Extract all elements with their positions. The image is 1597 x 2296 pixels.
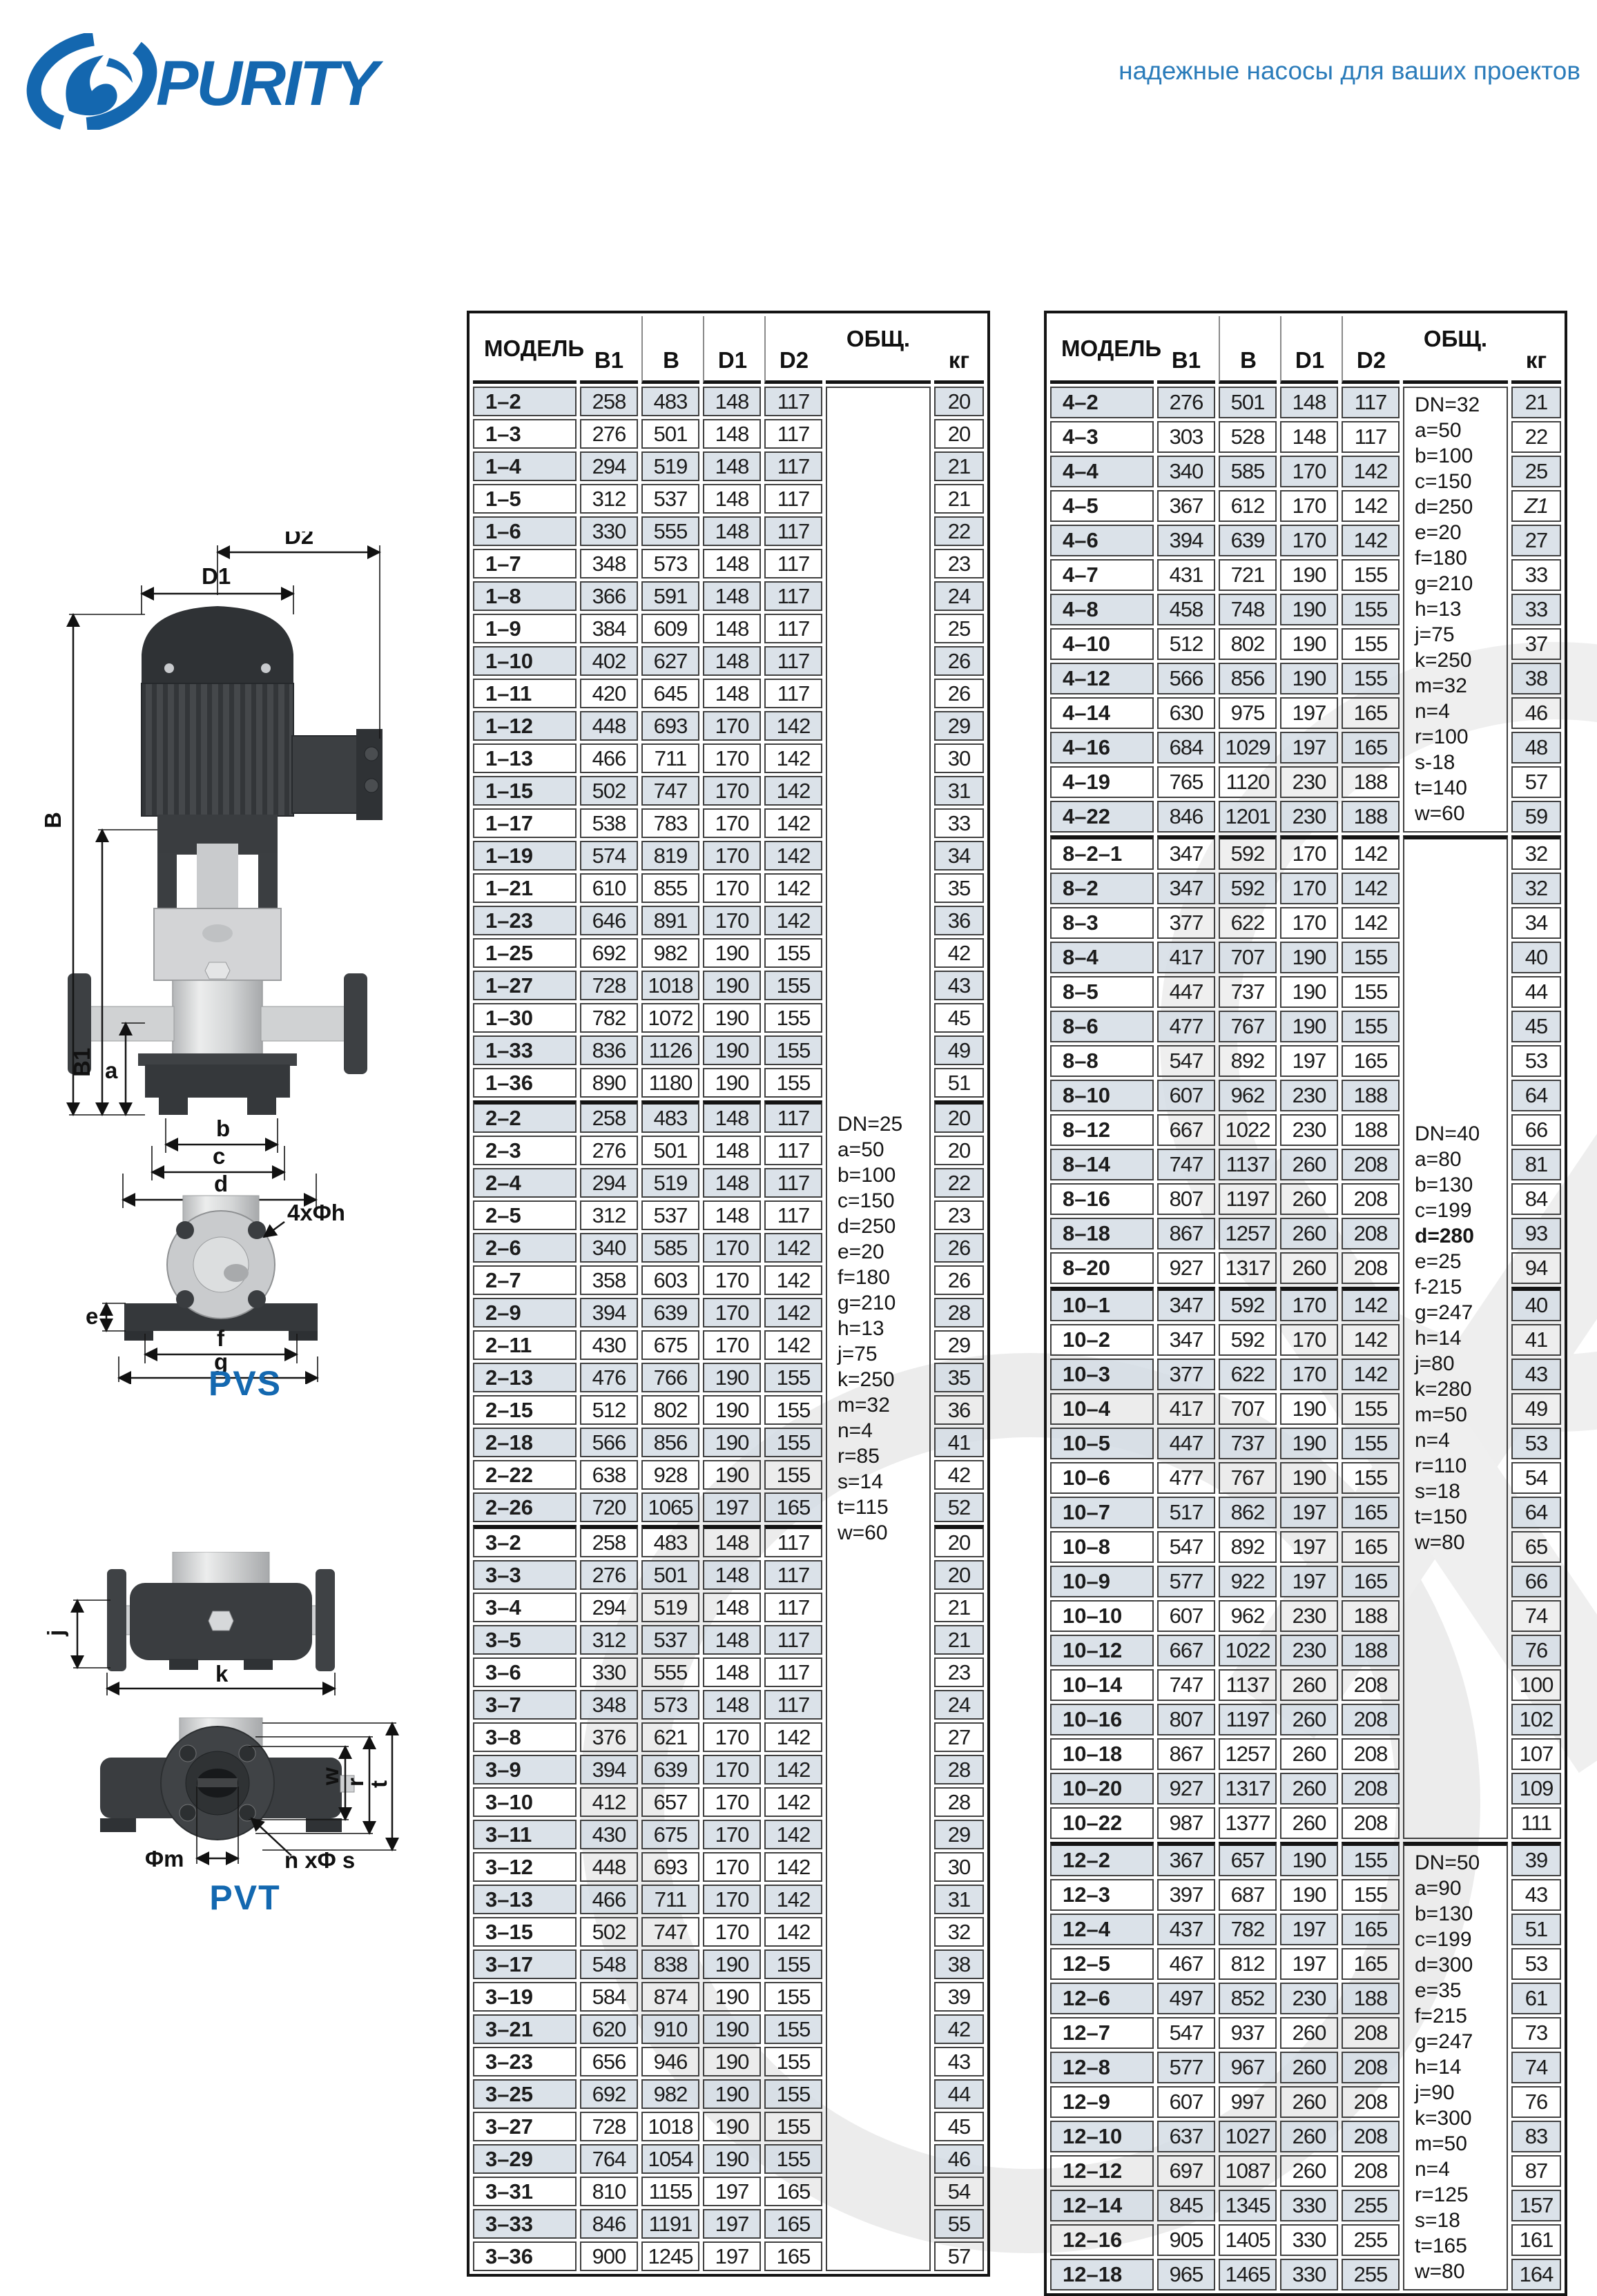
kg-cell: 21 [934, 484, 984, 514]
dim-cell: 142 [764, 1330, 822, 1360]
dim-cell: 330 [1280, 2259, 1338, 2290]
dim-cell: 547 [1157, 1531, 1215, 1563]
dim-cell: 117 [764, 1525, 822, 1557]
kg-cell: 21 [934, 1625, 984, 1655]
dim-cell: 170 [703, 1820, 761, 1849]
dim-cell: 466 [580, 1885, 638, 1914]
dim-cell: 170 [1280, 835, 1338, 870]
dim-cell: 190 [1280, 942, 1338, 973]
note-line: c=199 [1415, 1198, 1506, 1223]
note-line: h=14 [1415, 2055, 1506, 2080]
dim-cell: 117 [764, 1168, 822, 1198]
note-line: j=90 [1415, 2081, 1506, 2105]
model-cell: 4–6 [1050, 525, 1154, 556]
kg-cell: 20 [934, 419, 984, 449]
kg-cell: 44 [1511, 976, 1561, 1008]
kg-cell: 66 [1511, 1114, 1561, 1146]
common-dims-cell: DN=32a=50b=100c=150d=250e=20f=180g=210h=… [1403, 387, 1508, 833]
model-cell: 3–12 [473, 1852, 577, 1882]
dim-cell: 142 [764, 1852, 822, 1882]
dim-cell: 502 [580, 776, 638, 806]
dim-cell: 208 [1342, 2017, 1400, 2049]
dim-cell: 512 [1157, 628, 1215, 660]
dim-label-m: Φm [145, 1846, 184, 1871]
kg-cell: 32 [934, 1917, 984, 1947]
common-dims-block: DN=32a=50b=100c=150d=250e=20f=180g=210h=… [1405, 393, 1506, 826]
dim-cell: 258 [580, 1525, 638, 1557]
note-line: r=125 [1415, 2183, 1506, 2208]
kg-cell: 25 [1511, 456, 1561, 487]
note-line: f=180 [1415, 546, 1506, 571]
dim-cell: 142 [764, 1820, 822, 1849]
kg-cell: 31 [934, 1885, 984, 1914]
model-cell: 4–19 [1050, 766, 1154, 798]
dim-cell: 846 [580, 2209, 638, 2239]
model-cell: 8–8 [1050, 1045, 1154, 1077]
dim-cell: 584 [580, 1982, 638, 2012]
model-cell: 3–8 [473, 1722, 577, 1752]
note-line: s=14 [838, 1470, 929, 1495]
model-cell: 1–6 [473, 516, 577, 546]
dim-cell: 260 [1280, 1738, 1338, 1770]
dim-cell: 155 [1342, 1462, 1400, 1494]
kg-cell: 28 [934, 1755, 984, 1784]
dim-cell: 170 [703, 1233, 761, 1263]
dim-cell: 155 [764, 2079, 822, 2109]
dim-cell: 117 [764, 387, 822, 416]
dim-cell: 466 [580, 743, 638, 773]
dim-cell: 477 [1157, 1462, 1215, 1494]
dim-cell: 620 [580, 2014, 638, 2044]
dim-cell: 190 [1280, 628, 1338, 660]
dim-cell: 170 [1280, 907, 1338, 939]
model-cell: 8–14 [1050, 1149, 1154, 1180]
note-line: n=4 [838, 1419, 929, 1443]
dim-cell: 519 [641, 451, 699, 481]
dim-cell: 548 [580, 1949, 638, 1979]
pump-illustration [68, 606, 383, 1115]
kg-cell: 46 [1511, 697, 1561, 729]
dim-cell: 117 [764, 516, 822, 546]
model-cell: 2–13 [473, 1363, 577, 1392]
dim-cell: 394 [1157, 525, 1215, 556]
kg-cell: 22 [1511, 421, 1561, 453]
dim-cell: 197 [703, 2209, 761, 2239]
model-cell: 8–18 [1050, 1218, 1154, 1249]
kg-cell: 20 [934, 1560, 984, 1590]
note-line: m=50 [1415, 2132, 1506, 2157]
dim-cell: 142 [764, 1722, 822, 1752]
dim-cell: 348 [580, 549, 638, 578]
dim-cell: 997 [1219, 2086, 1277, 2118]
dim-cell: 117 [764, 1200, 822, 1230]
dim-cell: 603 [641, 1265, 699, 1295]
dim-cell: 190 [1280, 1462, 1338, 1494]
dim-cell: 148 [703, 1560, 761, 1590]
kg-cell: 38 [1511, 663, 1561, 694]
dim-cell: 657 [641, 1787, 699, 1817]
dim-cell: 684 [1157, 732, 1215, 763]
note-line: n=4 [1415, 2157, 1506, 2182]
dim-cell: 258 [580, 387, 638, 416]
note-line: w=60 [838, 1521, 929, 1546]
kg-cell: 20 [934, 1525, 984, 1557]
dim-cell: 891 [641, 906, 699, 935]
kg-cell: 53 [1511, 1045, 1561, 1077]
dim-cell: 1405 [1219, 2224, 1277, 2256]
dim-label-r: r [342, 1778, 368, 1787]
dim-cell: 347 [1157, 1287, 1215, 1321]
dim-cell: 782 [580, 1003, 638, 1033]
dim-cell: 142 [1342, 1359, 1400, 1390]
dim-cell: 367 [1157, 490, 1215, 522]
dim-cell: 639 [1219, 525, 1277, 556]
dim-cell: 197 [1280, 697, 1338, 729]
kg-cell: 49 [1511, 1393, 1561, 1425]
dim-cell: 117 [764, 1136, 822, 1165]
dim-cell: 802 [641, 1395, 699, 1425]
dim-cell: 394 [580, 1298, 638, 1327]
dim-cell: 874 [641, 1982, 699, 2012]
common-dims-cell: DN=25a=50b=100c=150d=250e=20f=180g=210h=… [826, 387, 931, 2271]
dim-cell: 117 [764, 549, 822, 578]
dim-cell: 155 [764, 2014, 822, 2044]
dim-cell: 447 [1157, 976, 1215, 1008]
dim-cell: 142 [764, 711, 822, 741]
dim-cell: 519 [641, 1593, 699, 1622]
note-line: f=180 [838, 1265, 929, 1290]
note-line: g=247 [1415, 1301, 1506, 1325]
dim-cell: 208 [1342, 2086, 1400, 2118]
kg-cell: 36 [934, 906, 984, 935]
dim-cell: 197 [1280, 1566, 1338, 1597]
dim-cell: 764 [580, 2144, 638, 2174]
kg-cell: 52 [934, 1492, 984, 1522]
dim-cell: 312 [580, 1625, 638, 1655]
dim-cell: 165 [764, 2177, 822, 2206]
dim-cell: 148 [703, 516, 761, 546]
dim-cell: 197 [703, 1492, 761, 1522]
model-cell: 1–23 [473, 906, 577, 935]
note-line: m=32 [1415, 674, 1506, 699]
dim-cell: 117 [764, 1593, 822, 1622]
dim-label-w: w [318, 1767, 343, 1786]
note-line: t=140 [1415, 776, 1506, 801]
dim-cell: 377 [1157, 1359, 1215, 1390]
dim-cell: 537 [641, 484, 699, 514]
col-header-b: B [1219, 316, 1277, 384]
dim-cell: 1018 [641, 2112, 699, 2141]
kg-cell: 109 [1511, 1773, 1561, 1804]
dim-cell: 155 [1342, 1011, 1400, 1042]
kg-cell: 53 [1511, 1948, 1561, 1980]
model-cell: 3–5 [473, 1625, 577, 1655]
kg-cell: 66 [1511, 1566, 1561, 1597]
dim-cell: 165 [764, 2209, 822, 2239]
dim-cell: 142 [764, 743, 822, 773]
model-cell: 1–17 [473, 808, 577, 838]
dim-cell: 501 [641, 419, 699, 449]
common-dims-cell: DN=40a=80b=130c=199d=280e=25f-215g=247h=… [1403, 835, 1508, 1839]
kg-cell: 39 [1511, 1842, 1561, 1876]
dim-cell: 142 [764, 1298, 822, 1327]
note-line: w=60 [1415, 801, 1506, 826]
dim-cell: 142 [764, 1787, 822, 1817]
dim-cell: 340 [1157, 456, 1215, 487]
dim-cell: 165 [1342, 1566, 1400, 1597]
dim-cell: 142 [764, 906, 822, 935]
dim-cell: 155 [764, 2144, 822, 2174]
model-cell: 3–23 [473, 2047, 577, 2076]
model-cell: 1–19 [473, 841, 577, 870]
dim-label-d: d [214, 1171, 228, 1196]
dim-cell: 142 [764, 873, 822, 903]
logo-swirl-dot [106, 58, 133, 83]
dim-cell: 1257 [1219, 1738, 1277, 1770]
dim-cell: 190 [703, 1003, 761, 1033]
dim-cell: 639 [641, 1755, 699, 1784]
dim-cell: 946 [641, 2047, 699, 2076]
col-header-d1: D1 [1280, 316, 1338, 384]
dim-cell: 922 [1219, 1566, 1277, 1597]
note-line: DN=32 [1415, 393, 1506, 418]
kg-cell: 29 [934, 1330, 984, 1360]
kg-cell: 74 [1511, 1600, 1561, 1632]
dim-cell: 1377 [1219, 1807, 1277, 1839]
dim-cell: 892 [1219, 1045, 1277, 1077]
dim-cell: 155 [1342, 663, 1400, 694]
dim-cell: 170 [1280, 525, 1338, 556]
dim-cell: 692 [580, 938, 638, 968]
dim-cell: 142 [1342, 835, 1400, 870]
dim-cell: 855 [641, 873, 699, 903]
dim-cell: 142 [1342, 907, 1400, 939]
dim-cell: 148 [703, 419, 761, 449]
model-cell: 8–16 [1050, 1183, 1154, 1215]
dim-cell: 294 [580, 1168, 638, 1198]
note-line: a=50 [838, 1138, 929, 1162]
dim-cell: 574 [580, 841, 638, 870]
dim-label-d1: D1 [202, 563, 231, 589]
dim-cell: 502 [580, 1917, 638, 1947]
note-line: g=210 [838, 1291, 929, 1316]
kg-cell: 57 [1511, 766, 1561, 798]
dim-cell: 1191 [641, 2209, 699, 2239]
model-cell: 12–6 [1050, 1983, 1154, 2014]
dim-cell: 117 [764, 1560, 822, 1590]
note-line: a=90 [1415, 1876, 1506, 1901]
pump-illustration [100, 1718, 354, 1840]
model-cell: 1–4 [473, 451, 577, 481]
dim-cell: 155 [1342, 559, 1400, 591]
note-line: a=80 [1415, 1147, 1506, 1172]
dim-cell: 330 [580, 516, 638, 546]
kg-cell: 64 [1511, 1497, 1561, 1528]
kg-cell: 30 [934, 743, 984, 773]
kg-cell: 26 [934, 646, 984, 676]
dim-cell: 190 [1280, 1879, 1338, 1911]
dim-cell: 165 [1342, 1948, 1400, 1980]
kg-cell: 30 [934, 1852, 984, 1882]
dim-cell: 142 [1342, 525, 1400, 556]
dim-cell: 1201 [1219, 801, 1277, 833]
dim-label-b1: B1 [69, 1048, 95, 1077]
kg-cell: 44 [934, 2079, 984, 2109]
model-cell: 10–2 [1050, 1324, 1154, 1356]
dim-cell: 807 [1157, 1704, 1215, 1735]
dim-cell: 862 [1219, 1497, 1277, 1528]
dim-cell: 190 [1280, 1428, 1338, 1459]
dim-cell: 1345 [1219, 2190, 1277, 2221]
dim-cell: 155 [1342, 594, 1400, 625]
dim-cell: 117 [764, 679, 822, 708]
dim-cell: 148 [703, 646, 761, 676]
dim-cell: 1022 [1219, 1114, 1277, 1146]
dim-cell: 430 [580, 1820, 638, 1849]
model-cell: 8–3 [1050, 907, 1154, 939]
dim-cell: 190 [703, 1363, 761, 1392]
dim-cell: 165 [1342, 1914, 1400, 1945]
tagline: надежные насосы для ваших проектов [1119, 57, 1580, 86]
dim-cell: 142 [764, 1755, 822, 1784]
note-line: j=80 [1415, 1352, 1506, 1376]
kg-cell: 87 [1511, 2155, 1561, 2187]
dim-cell: 170 [703, 1330, 761, 1360]
kg-cell: 23 [934, 1200, 984, 1230]
dim-cell: 807 [1157, 1183, 1215, 1215]
dim-cell: 656 [580, 2047, 638, 2076]
kg-cell: 24 [934, 581, 984, 611]
dim-cell: 1465 [1219, 2259, 1277, 2290]
dim-cell: 230 [1280, 1983, 1338, 2014]
dim-cell: 927 [1157, 1773, 1215, 1804]
dim-cell: 190 [703, 1982, 761, 2012]
model-cell: 12–10 [1050, 2121, 1154, 2152]
kg-cell: 107 [1511, 1738, 1561, 1770]
dim-cell: 190 [703, 1395, 761, 1425]
dim-cell: 720 [580, 1492, 638, 1522]
note-line: b=100 [838, 1163, 929, 1188]
kg-cell: 51 [1511, 1914, 1561, 1945]
dim-cell: 117 [764, 484, 822, 514]
dim-cell: 208 [1342, 1252, 1400, 1284]
dim-cell: 962 [1219, 1600, 1277, 1632]
dim-cell: 155 [1342, 628, 1400, 660]
kg-cell: 39 [934, 1982, 984, 2012]
model-cell: 12–3 [1050, 1879, 1154, 1911]
dim-cell: 155 [1342, 942, 1400, 973]
model-cell: 3–7 [473, 1690, 577, 1720]
dim-label-bolt: n xΦ s [284, 1847, 355, 1873]
dim-cell: 148 [703, 614, 761, 643]
dim-cell: 260 [1280, 1149, 1338, 1180]
dim-cell: 170 [703, 776, 761, 806]
dim-cell: 447 [1157, 1428, 1215, 1459]
kg-cell: 27 [1511, 525, 1561, 556]
dim-cell: 260 [1280, 1218, 1338, 1249]
dim-cell: 737 [1219, 976, 1277, 1008]
note-line: s=18 [1415, 2208, 1506, 2233]
dim-cell: 190 [1280, 1393, 1338, 1425]
dim-cell: 208 [1342, 1149, 1400, 1180]
dim-cell: 165 [764, 2241, 822, 2271]
model-cell: 3–17 [473, 1949, 577, 1979]
dim-cell: 190 [703, 1949, 761, 1979]
model-cell: 1–3 [473, 419, 577, 449]
dim-cell: 190 [703, 938, 761, 968]
dim-cell: 573 [641, 549, 699, 578]
dim-cell: 170 [1280, 1324, 1338, 1356]
dim-cell: 142 [764, 1885, 822, 1914]
note-line: m=32 [838, 1393, 929, 1418]
model-cell: 3–29 [473, 2144, 577, 2174]
dim-cell: 170 [703, 1722, 761, 1752]
dim-cell: 937 [1219, 2017, 1277, 2049]
model-cell: 8–6 [1050, 1011, 1154, 1042]
dim-cell: 675 [641, 1330, 699, 1360]
dim-cell: 612 [1219, 490, 1277, 522]
dim-cell: 260 [1280, 2086, 1338, 2118]
dim-cell: 260 [1280, 1773, 1338, 1804]
dim-cell: 155 [764, 1035, 822, 1065]
dim-cell: 892 [1219, 1531, 1277, 1563]
logo-swirl-icon [26, 33, 161, 130]
dim-cell: 1126 [641, 1035, 699, 1065]
dim-cell: 711 [641, 1885, 699, 1914]
model-cell: 3–36 [473, 2241, 577, 2271]
dim-cell: 190 [703, 1460, 761, 1490]
dim-cell: 592 [1219, 1324, 1277, 1356]
dim-cell: 1180 [641, 1068, 699, 1098]
dim-cell: 188 [1342, 766, 1400, 798]
dim-cell: 190 [1280, 976, 1338, 1008]
kg-cell: 29 [934, 711, 984, 741]
dim-cell: 783 [641, 808, 699, 838]
dim-cell: 142 [1342, 456, 1400, 487]
model-cell: 4–12 [1050, 663, 1154, 694]
dim-cell: 165 [764, 1492, 822, 1522]
dim-cell: 767 [1219, 1462, 1277, 1494]
model-cell: 8–2 [1050, 873, 1154, 904]
dim-label-f: f [217, 1325, 225, 1351]
dim-cell: 721 [1219, 559, 1277, 591]
kg-cell: 40 [1511, 942, 1561, 973]
dim-cell: 497 [1157, 1983, 1215, 2014]
note-line: c=150 [838, 1189, 929, 1214]
dim-label-bolt: 4xΦh [287, 1200, 345, 1225]
dim-cell: 117 [764, 646, 822, 676]
dim-cell: 190 [703, 1035, 761, 1065]
dim-cell: 188 [1342, 1635, 1400, 1666]
note-line: w=80 [1415, 2259, 1506, 2284]
dim-cell: 975 [1219, 697, 1277, 729]
dim-cell: 1065 [641, 1492, 699, 1522]
dim-cell: 170 [703, 873, 761, 903]
dim-cell: 155 [764, 1982, 822, 2012]
model-cell: 12–7 [1050, 2017, 1154, 2049]
dim-cell: 367 [1157, 1842, 1215, 1876]
dim-cell: 967 [1219, 2052, 1277, 2083]
dim-cell: 802 [1219, 628, 1277, 660]
kg-cell: 57 [934, 2241, 984, 2271]
dim-cell: 148 [1280, 387, 1338, 418]
kg-cell: 45 [934, 2112, 984, 2141]
model-cell: 1–25 [473, 938, 577, 968]
dim-cell: 170 [703, 711, 761, 741]
dim-cell: 190 [1280, 594, 1338, 625]
kg-cell: 33 [1511, 559, 1561, 591]
dim-cell: 148 [703, 1136, 761, 1165]
